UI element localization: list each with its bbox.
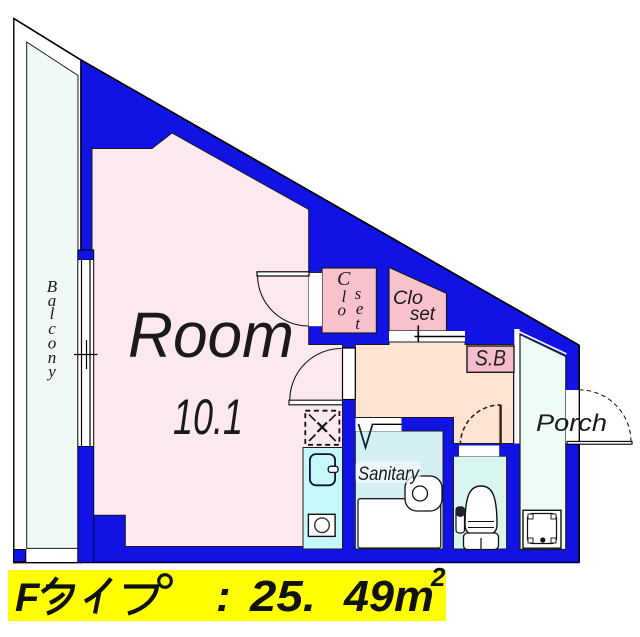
svg-text:49m: 49m xyxy=(343,572,434,621)
svg-text:Sanitary: Sanitary xyxy=(358,464,420,485)
svg-text:o: o xyxy=(338,300,347,319)
svg-text:S.B: S.B xyxy=(475,346,506,371)
svg-text:10.1: 10.1 xyxy=(173,389,243,445)
svg-text:25.: 25. xyxy=(249,572,316,621)
svg-text:set: set xyxy=(410,304,436,325)
svg-text::: : xyxy=(216,572,231,621)
svg-text:F: F xyxy=(15,576,41,620)
svg-text:Room: Room xyxy=(128,299,294,371)
svg-text:y: y xyxy=(46,362,56,381)
svg-text:Porch: Porch xyxy=(536,410,607,437)
svg-text:2: 2 xyxy=(430,562,446,592)
